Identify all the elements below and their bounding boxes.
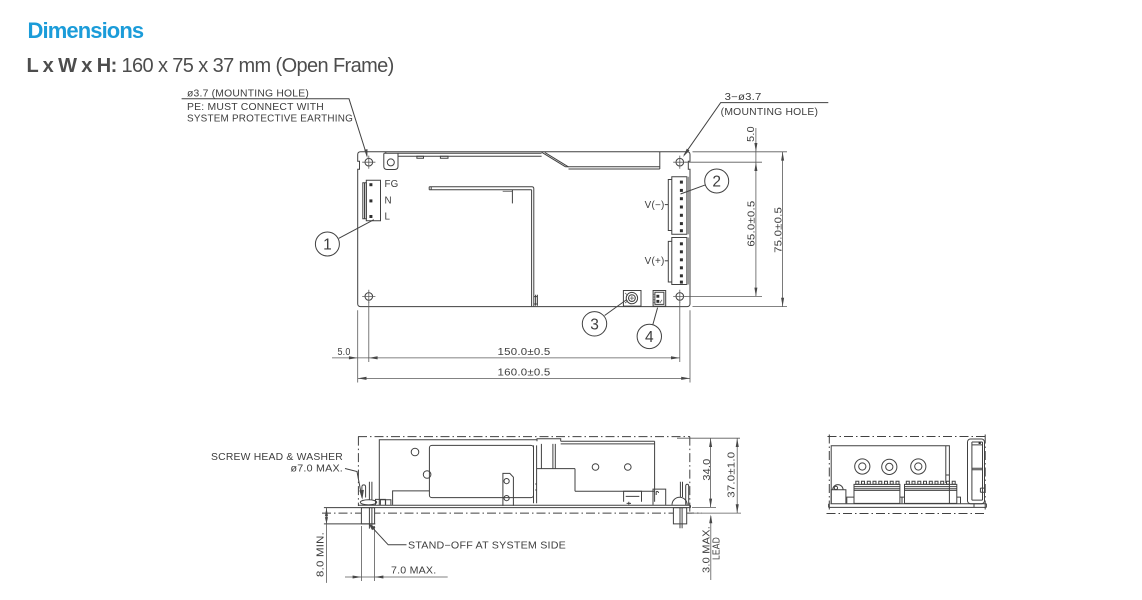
svg-text:160.0±0.5: 160.0±0.5 [498, 367, 551, 378]
svg-text:SYSTEM PROTECTIVE EARTHING: SYSTEM PROTECTIVE EARTHING [187, 113, 353, 124]
svg-text:ø3.7 (MOUNTING HOLE): ø3.7 (MOUNTING HOLE) [187, 89, 309, 100]
svg-text:SCREW HEAD & WASHER: SCREW HEAD & WASHER [211, 452, 343, 463]
svg-text:37.0±1.0: 37.0±1.0 [727, 451, 738, 497]
svg-text:4: 4 [645, 329, 654, 346]
svg-text:3−ø3.7: 3−ø3.7 [725, 92, 762, 103]
svg-text:5.0: 5.0 [746, 126, 757, 142]
svg-text:7.0 MAX.: 7.0 MAX. [391, 566, 436, 577]
svg-text:150.0±0.5: 150.0±0.5 [498, 347, 551, 358]
svg-text:STAND−OFF AT SYSTEM SIDE: STAND−OFF AT SYSTEM SIDE [408, 540, 566, 551]
svg-text:34.0: 34.0 [702, 458, 713, 480]
svg-text:N: N [385, 196, 392, 207]
svg-text:1: 1 [323, 237, 332, 254]
svg-text:L: L [385, 211, 391, 222]
svg-text:8.0 MIN.: 8.0 MIN. [315, 532, 326, 577]
svg-text:ø7.0 MAX.: ø7.0 MAX. [291, 464, 344, 475]
svg-text:FG: FG [385, 179, 399, 190]
svg-text:PE: MUST CONNECT WITH: PE: MUST CONNECT WITH [187, 102, 324, 113]
svg-text:5.0: 5.0 [338, 347, 351, 358]
svg-text:3: 3 [590, 316, 599, 333]
svg-text:V(+): V(+) [645, 256, 665, 267]
svg-text:65.0±0.5: 65.0±0.5 [747, 200, 758, 246]
svg-text:2: 2 [712, 174, 721, 191]
svg-text:75.0±0.5: 75.0±0.5 [773, 207, 784, 253]
svg-text:(MOUNTING HOLE): (MOUNTING HOLE) [721, 107, 819, 118]
svg-text:LEAD: LEAD [711, 537, 722, 560]
svg-text:V(−): V(−) [645, 200, 665, 211]
